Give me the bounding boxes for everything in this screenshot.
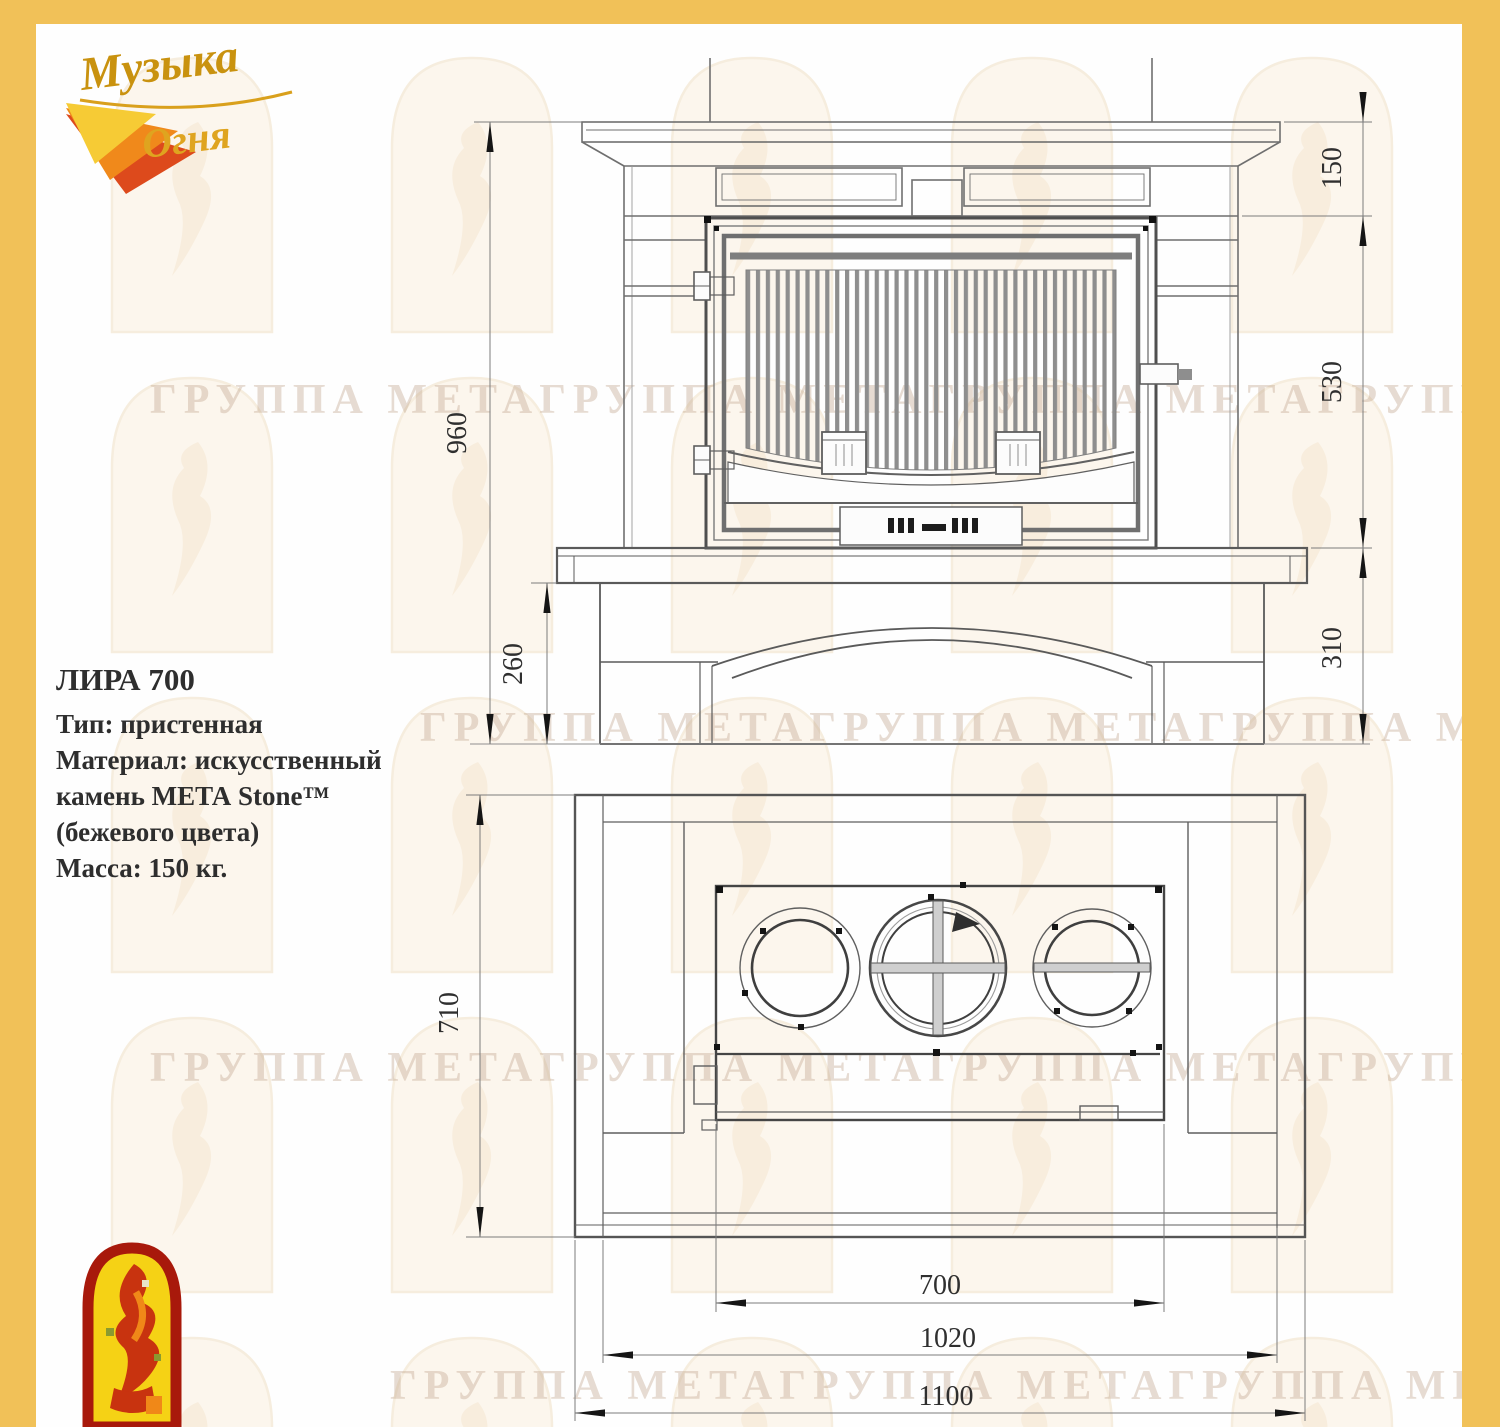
spec-material-2: камень МЕТА Stone™: [56, 778, 382, 814]
dim-label-depth: 710: [434, 992, 465, 1034]
dim-label-base-height: 260: [498, 643, 529, 685]
base-arch-inner: [732, 640, 1132, 678]
grille-bars: [746, 270, 1116, 470]
frame-border-left: [0, 0, 36, 1427]
catalog-page: ГРУППА МЕТАГРУППА МЕТАГРУППА МЕТАГРУППА …: [0, 0, 1500, 1427]
hinge-pocket-plan: [694, 1066, 717, 1104]
dim-label-firebox-zone: 530: [1317, 361, 1348, 403]
brand-logo-word-1: Музыка: [76, 30, 241, 101]
base-arch-outer: [712, 628, 1152, 666]
spec-material-1: Материал: искусственный: [56, 742, 382, 778]
spec-block: ЛИРА 700 Тип: пристенная Материал: искус…: [56, 662, 382, 886]
latch-plan: [1080, 1106, 1118, 1120]
air-control-strip: [840, 507, 1022, 545]
dim-label-hearth-to-floor: 310: [1317, 627, 1348, 669]
flue-outlet-left: [740, 908, 860, 1028]
brand-logo: Музыка Огня: [52, 26, 322, 216]
flue-outlet-center: [870, 900, 1006, 1036]
spec-weight: Масса: 150 кг.: [56, 850, 382, 886]
dim-label-inner-width: 1020: [920, 1323, 976, 1354]
dim-label-total-width: 1100: [919, 1381, 974, 1412]
brand-logo-word-2: Огня: [139, 110, 233, 166]
dim-label-mantel-band: 150: [1317, 147, 1348, 189]
model-title: ЛИРА 700: [56, 662, 382, 698]
dim-label-firebox-width: 700: [919, 1270, 961, 1301]
plan-view: [575, 795, 1305, 1237]
firebird-emblem: [76, 1236, 188, 1427]
hearth-and-base: [470, 548, 1370, 744]
spec-color: (бежевого цвета): [56, 814, 382, 850]
frame-border-right: [1462, 0, 1500, 1427]
spec-type: Тип: пристенная: [56, 706, 382, 742]
frame-border-top: [0, 0, 1500, 24]
dim-label-total-height: 960: [442, 412, 473, 454]
firebox-door: [694, 216, 1192, 548]
door-latch: [1140, 364, 1192, 384]
